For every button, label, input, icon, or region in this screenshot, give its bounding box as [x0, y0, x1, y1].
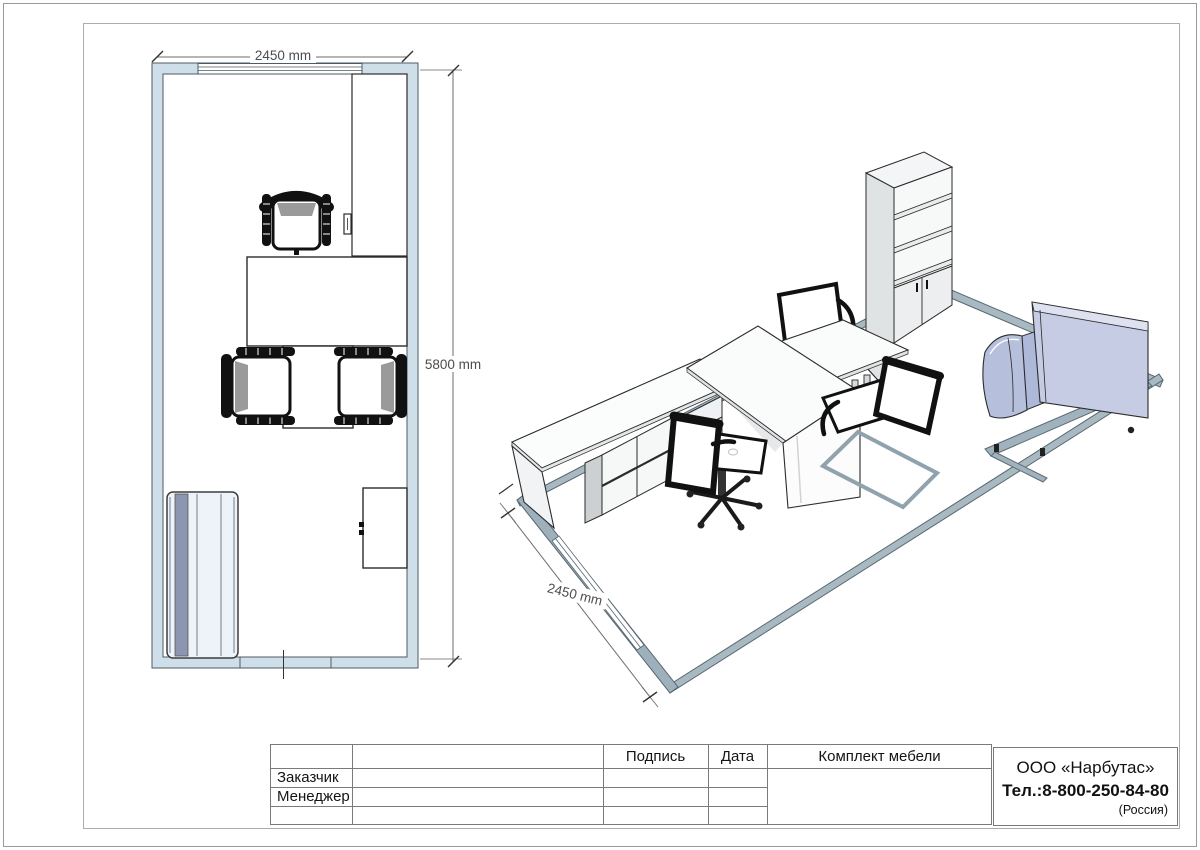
signature-header-cell: Подпись — [603, 744, 708, 768]
empty-label-cell — [270, 806, 359, 825]
date-header-cell: Дата — [708, 744, 767, 768]
plan-cabinet — [344, 74, 407, 256]
company-phone: Тел.:8-800-250-84-80 — [994, 779, 1177, 802]
plan-visitor-chair-left — [221, 347, 295, 425]
iso-sofa — [983, 302, 1152, 482]
plan-executive-chair — [262, 194, 331, 255]
company-name: ООО «Нарбутас» — [994, 756, 1177, 779]
plan-sofa — [167, 492, 238, 658]
plan-cupboard — [359, 488, 407, 568]
manager-label-cell: Менеджер — [270, 787, 359, 806]
company-box: ООО «Нарбутас» Тел.:8-800-250-84-80 (Рос… — [993, 747, 1178, 826]
furniture-set-header-cell: Комплект мебели — [767, 744, 992, 768]
iso-executive-chair — [668, 416, 766, 531]
title-block-line — [270, 768, 992, 769]
drawing-canvas: 2450 mm 5800 mm — [0, 0, 1200, 850]
iso-front-dimension: 2450 mm — [499, 484, 658, 707]
plan-width-dimension: 2450 mm — [152, 47, 413, 63]
plan-height-dimension-label: 5800 mm — [425, 357, 481, 372]
plan-visitor-chair-right — [334, 347, 407, 425]
customer-label-cell: Заказчик — [270, 768, 359, 787]
iso-view: 2450 mm — [499, 152, 1163, 707]
company-country: (Россия) — [994, 802, 1177, 818]
plan-window — [198, 64, 362, 75]
plan-width-dimension-label: 2450 mm — [255, 48, 311, 63]
plan-desk — [247, 257, 407, 346]
plan-height-dimension: 5800 mm — [420, 65, 484, 667]
floor-plan: 2450 mm 5800 mm — [152, 47, 484, 679]
